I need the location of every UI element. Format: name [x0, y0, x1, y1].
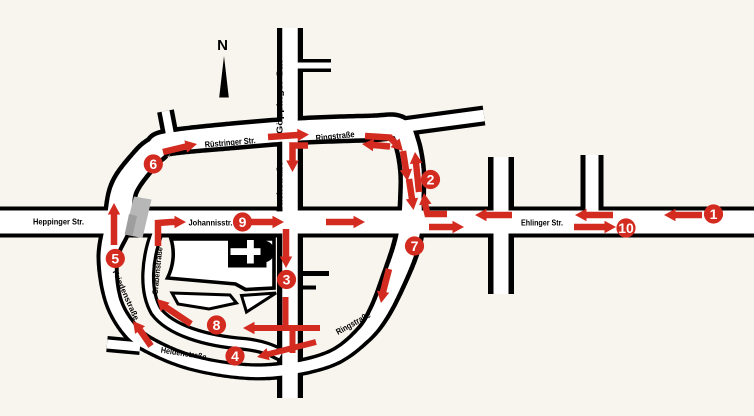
- svg-text:10: 10: [618, 220, 634, 236]
- svg-text:6: 6: [149, 156, 157, 172]
- svg-text:7: 7: [411, 238, 419, 254]
- svg-text:1: 1: [710, 206, 718, 222]
- svg-text:4: 4: [231, 348, 239, 364]
- svg-text:9: 9: [239, 214, 247, 230]
- svg-text:Johannisstr.: Johannisstr.: [189, 218, 233, 228]
- svg-text:Heppinger Str.: Heppinger Str.: [33, 217, 84, 227]
- svg-text:5: 5: [111, 251, 119, 267]
- svg-text:N: N: [217, 37, 228, 54]
- svg-text:3: 3: [283, 272, 291, 288]
- svg-text:Bachstraße: Bachstraße: [276, 160, 285, 212]
- svg-text:8: 8: [213, 317, 221, 333]
- svg-text:Ehlinger Str.: Ehlinger Str.: [521, 218, 563, 228]
- svg-text:Göppinger Str.: Göppinger Str.: [276, 60, 285, 134]
- svg-text:2: 2: [427, 172, 435, 188]
